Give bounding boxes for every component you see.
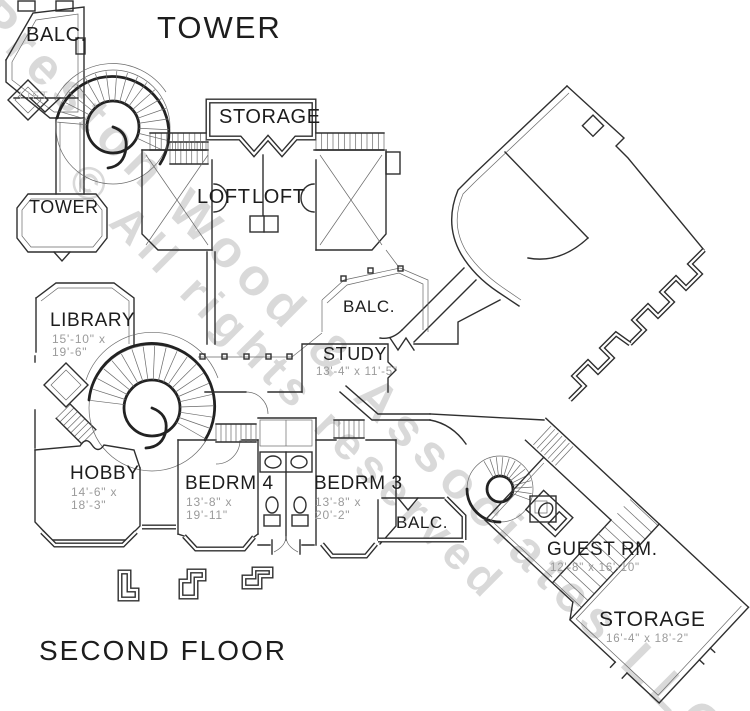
- spiral-stair-main: [86, 332, 218, 471]
- overlook-railing: [198, 333, 322, 359]
- floorplan-page: Preston Wood & Associates LLC © All righ…: [0, 0, 750, 711]
- dims-line: 19'-11": [186, 509, 232, 522]
- upper-hall-wall: [207, 252, 215, 344]
- dims-line: 18'-3": [71, 499, 117, 512]
- room-label-lift: LIFT: [19, 90, 50, 102]
- roof-detail-glyphs: [120, 569, 271, 599]
- room-label-library: LIBRARY: [50, 311, 135, 332]
- loft-right: [316, 150, 400, 266]
- room-label-study: STUDY: [323, 345, 387, 365]
- room-dims-storage-lower: 16'-4" x 18'-2": [606, 633, 689, 646]
- room-dims-bedrm3: 13'-8" x 20'-2": [315, 496, 361, 522]
- room-dims-study: 13'-4" x 11'-5": [316, 366, 398, 379]
- dims-line: 13'-4" x 11'-5": [316, 366, 398, 379]
- dims-line: 12'-8" x 16'-10": [550, 562, 640, 575]
- right-wing: [452, 86, 704, 306]
- room-dims-guest: 12'-8" x 16'-10": [550, 562, 640, 575]
- room-label-storage-top: STORAGE: [219, 106, 321, 128]
- room-label-balc-bottom: BALC.: [396, 514, 448, 533]
- room-label-loft-left: LOFT: [197, 186, 251, 208]
- room-label-hobby: HOBBY: [70, 464, 140, 485]
- castellated-wall: [570, 250, 704, 400]
- room-label-loft-right: LOFT: [252, 186, 306, 208]
- guest-bath: [526, 490, 573, 536]
- dims-line: 19'-6": [52, 346, 106, 359]
- room-label-bedrm3: BEDRM 3: [314, 474, 403, 495]
- floor-title: SECOND FLOOR: [39, 636, 287, 667]
- room-label-tower-lower: TOWER: [29, 198, 99, 218]
- library-lift: [35, 356, 96, 448]
- tower-title: TOWER: [157, 11, 282, 45]
- room-label-balc-mid: BALC.: [343, 298, 395, 317]
- room-label-guest: GUEST RM.: [547, 540, 658, 561]
- dims-line: 16'-4" x 18'-2": [606, 633, 689, 646]
- room-dims-hobby: 14'-6" x 18'-3": [71, 486, 117, 512]
- room-label-balc-tower: BALC.: [26, 24, 87, 46]
- room-label-storage-lower: STORAGE: [599, 608, 706, 631]
- room-label-bedrm4: BEDRM 4: [185, 474, 274, 495]
- bedwing-corridor: [178, 392, 544, 464]
- tower-shaft: [56, 118, 80, 194]
- room-dims-bedrm4: 13'-8" x 19'-11": [186, 496, 232, 522]
- room-dims-library: 15'-10" x 19'-6": [52, 333, 106, 359]
- spiral-stair-guest: [467, 456, 556, 522]
- dims-line: 20'-2": [315, 509, 361, 522]
